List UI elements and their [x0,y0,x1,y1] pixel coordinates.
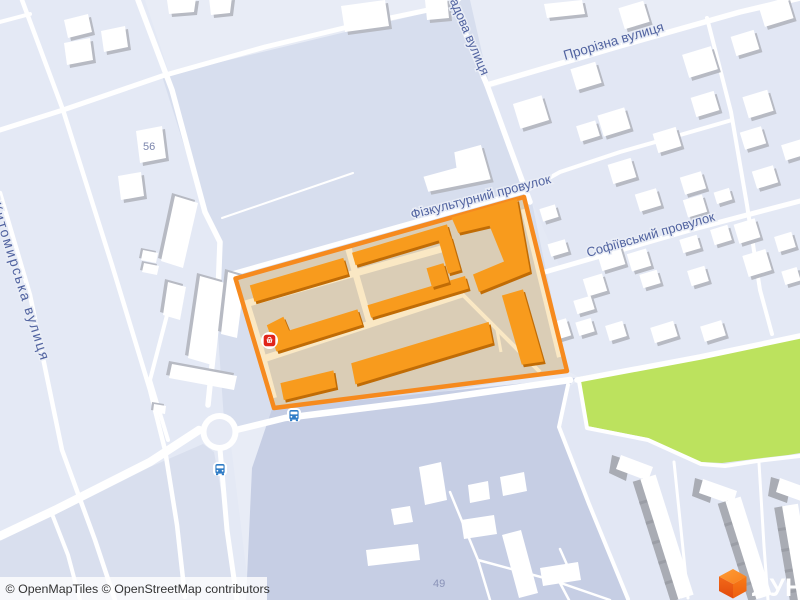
svg-text:49: 49 [433,578,445,590]
svg-text:56: 56 [143,141,155,153]
svg-text:© OpenMapTiles © OpenStreetMap: © OpenMapTiles © OpenStreetMap contribut… [6,582,270,596]
svg-text:ЛУН: ЛУН [752,574,800,600]
